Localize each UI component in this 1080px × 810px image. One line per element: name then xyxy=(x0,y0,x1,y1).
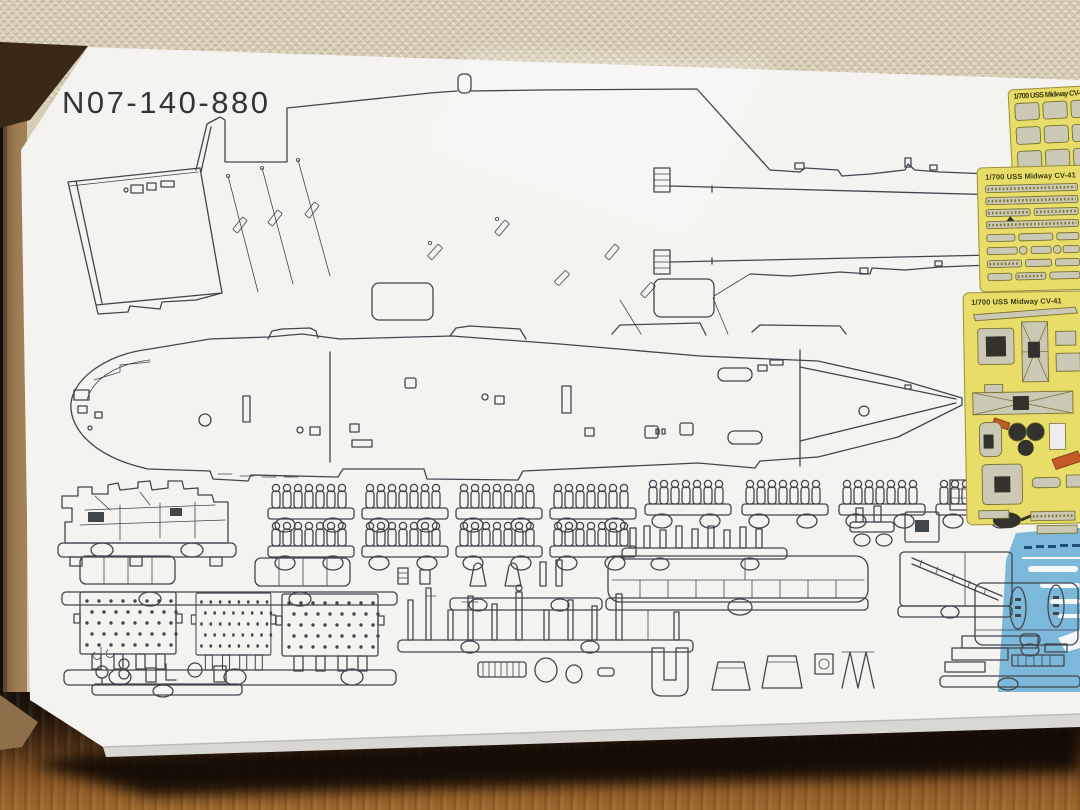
part-code-text: N07-140-880 xyxy=(62,85,270,120)
photo-etch-sheet-railings: 1/700 USS Midway CV-41 xyxy=(977,165,1080,292)
etch-sheet-label: 1/700 USS Midway CV-41 xyxy=(971,296,1062,307)
photo-etch-sheet-small: 1/700 USS Midway CV-41 xyxy=(1008,85,1080,175)
photo-of-model-kit-box: 1/700 USS Midway CV-41 1/700 USS Midway … xyxy=(0,0,1080,810)
photo-etch-sheet-details: 1/700 USS Midway CV-41 xyxy=(963,291,1080,535)
cardboard-corner xyxy=(0,695,38,750)
box-lid-photo: 1/700 USS Midway CV-41 1/700 USS Midway … xyxy=(0,0,1080,810)
